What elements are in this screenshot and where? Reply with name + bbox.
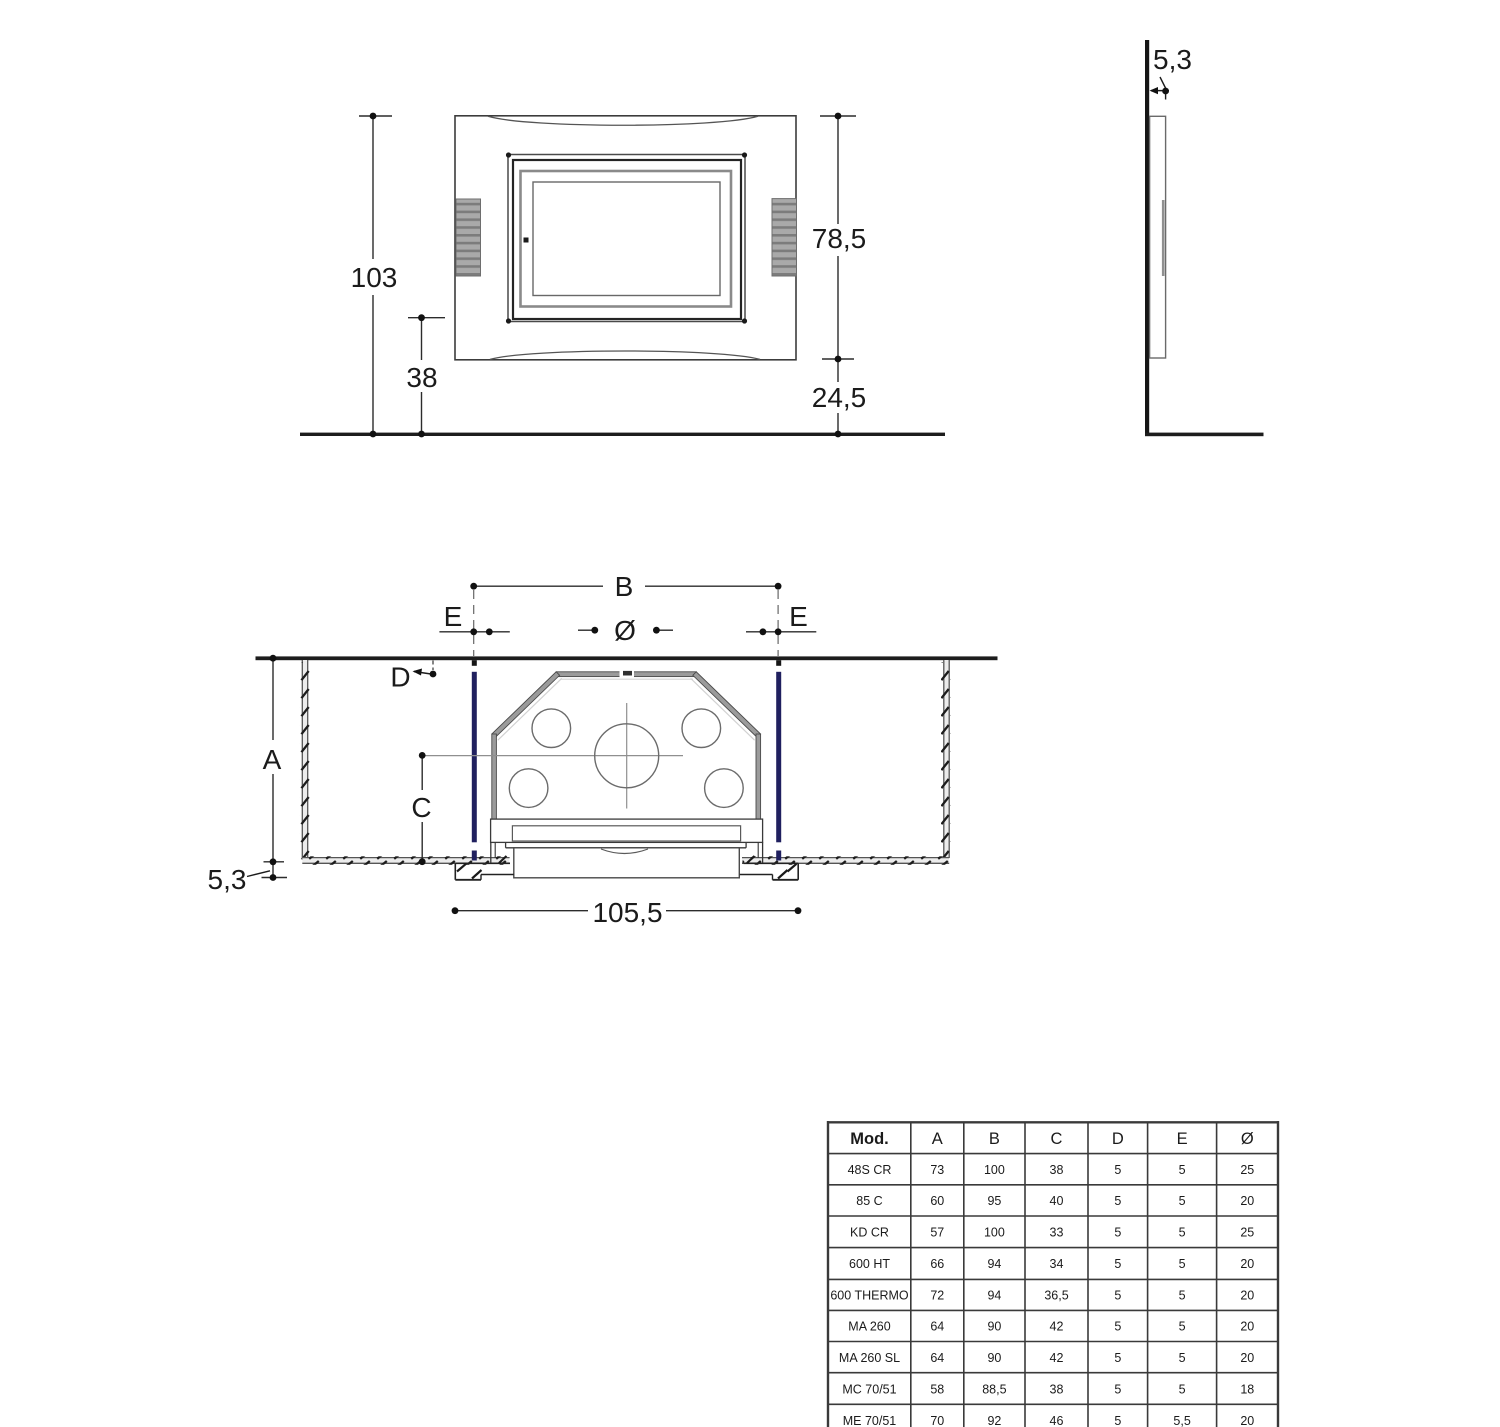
svg-text:38: 38	[1050, 1383, 1064, 1397]
svg-text:MA 260: MA 260	[848, 1320, 890, 1334]
svg-text:20: 20	[1240, 1257, 1254, 1271]
svg-text:103: 103	[351, 262, 398, 293]
svg-text:Ø: Ø	[1241, 1130, 1254, 1148]
svg-text:60: 60	[930, 1194, 944, 1208]
svg-text:5: 5	[1114, 1383, 1121, 1397]
svg-text:40: 40	[1050, 1194, 1064, 1208]
svg-text:C: C	[411, 792, 431, 823]
svg-text:46: 46	[1050, 1414, 1064, 1427]
svg-text:D: D	[390, 662, 410, 693]
svg-text:58: 58	[930, 1383, 944, 1397]
svg-text:E: E	[789, 601, 808, 632]
svg-text:25: 25	[1240, 1163, 1254, 1177]
svg-text:A: A	[932, 1130, 943, 1148]
svg-text:5: 5	[1114, 1194, 1121, 1208]
svg-text:85 C: 85 C	[856, 1194, 882, 1208]
svg-text:38: 38	[1050, 1163, 1064, 1177]
svg-text:42: 42	[1050, 1351, 1064, 1365]
svg-text:38: 38	[406, 362, 437, 393]
svg-text:34: 34	[1050, 1257, 1064, 1271]
svg-text:5: 5	[1114, 1351, 1121, 1365]
svg-text:18: 18	[1240, 1383, 1254, 1397]
svg-text:90: 90	[987, 1320, 1001, 1334]
svg-text:94: 94	[987, 1257, 1001, 1271]
svg-text:70: 70	[930, 1414, 944, 1427]
svg-text:90: 90	[987, 1351, 1001, 1365]
svg-text:5: 5	[1114, 1163, 1121, 1177]
svg-text:B: B	[989, 1130, 1000, 1148]
svg-text:5: 5	[1114, 1226, 1121, 1240]
svg-text:66: 66	[930, 1257, 944, 1271]
svg-text:78,5: 78,5	[812, 223, 867, 254]
svg-text:20: 20	[1240, 1194, 1254, 1208]
svg-text:33: 33	[1050, 1226, 1064, 1240]
svg-text:20: 20	[1240, 1320, 1254, 1334]
svg-text:MA 260 SL: MA 260 SL	[839, 1351, 900, 1365]
svg-text:105,5: 105,5	[592, 897, 662, 928]
svg-text:5,3: 5,3	[1153, 44, 1192, 75]
svg-text:C: C	[1051, 1130, 1063, 1148]
svg-text:5: 5	[1114, 1289, 1121, 1303]
svg-text:600 THERMO: 600 THERMO	[830, 1289, 909, 1303]
svg-text:E: E	[1177, 1130, 1188, 1148]
svg-text:5: 5	[1114, 1257, 1121, 1271]
svg-text:36,5: 36,5	[1044, 1289, 1068, 1303]
svg-text:73: 73	[930, 1163, 944, 1177]
svg-text:Mod.: Mod.	[850, 1130, 889, 1148]
svg-text:95: 95	[987, 1194, 1001, 1208]
svg-text:D: D	[1112, 1130, 1124, 1148]
svg-text:E: E	[444, 601, 463, 632]
svg-text:Ø: Ø	[614, 615, 636, 646]
svg-text:57: 57	[930, 1226, 944, 1240]
svg-text:100: 100	[984, 1226, 1005, 1240]
svg-text:B: B	[615, 571, 634, 602]
svg-text:64: 64	[930, 1351, 944, 1365]
svg-text:94: 94	[987, 1289, 1001, 1303]
svg-text:42: 42	[1050, 1320, 1064, 1334]
svg-text:72: 72	[930, 1289, 944, 1303]
svg-text:5,3: 5,3	[208, 864, 247, 895]
svg-text:5: 5	[1179, 1226, 1186, 1240]
svg-text:5: 5	[1114, 1320, 1121, 1334]
svg-text:20: 20	[1240, 1351, 1254, 1365]
svg-text:5: 5	[1179, 1320, 1186, 1334]
svg-text:MC 70/51: MC 70/51	[842, 1383, 896, 1397]
svg-text:ME 70/51: ME 70/51	[843, 1414, 897, 1427]
svg-text:5: 5	[1179, 1194, 1186, 1208]
svg-text:48S CR: 48S CR	[848, 1163, 892, 1177]
svg-text:5: 5	[1179, 1257, 1186, 1271]
svg-text:20: 20	[1240, 1289, 1254, 1303]
svg-text:64: 64	[930, 1320, 944, 1334]
svg-text:20: 20	[1240, 1414, 1254, 1427]
svg-text:5: 5	[1179, 1383, 1186, 1397]
svg-text:5: 5	[1179, 1289, 1186, 1303]
svg-text:100: 100	[984, 1163, 1005, 1177]
svg-text:5: 5	[1179, 1163, 1186, 1177]
svg-text:5,5: 5,5	[1173, 1414, 1190, 1427]
svg-text:88,5: 88,5	[982, 1383, 1006, 1397]
svg-text:A: A	[263, 744, 282, 775]
svg-text:5: 5	[1114, 1414, 1121, 1427]
svg-text:KD CR: KD CR	[850, 1226, 889, 1240]
svg-text:92: 92	[987, 1414, 1001, 1427]
svg-text:600 HT: 600 HT	[849, 1257, 890, 1271]
svg-text:5: 5	[1179, 1351, 1186, 1365]
svg-text:24,5: 24,5	[812, 382, 867, 413]
svg-text:25: 25	[1240, 1226, 1254, 1240]
